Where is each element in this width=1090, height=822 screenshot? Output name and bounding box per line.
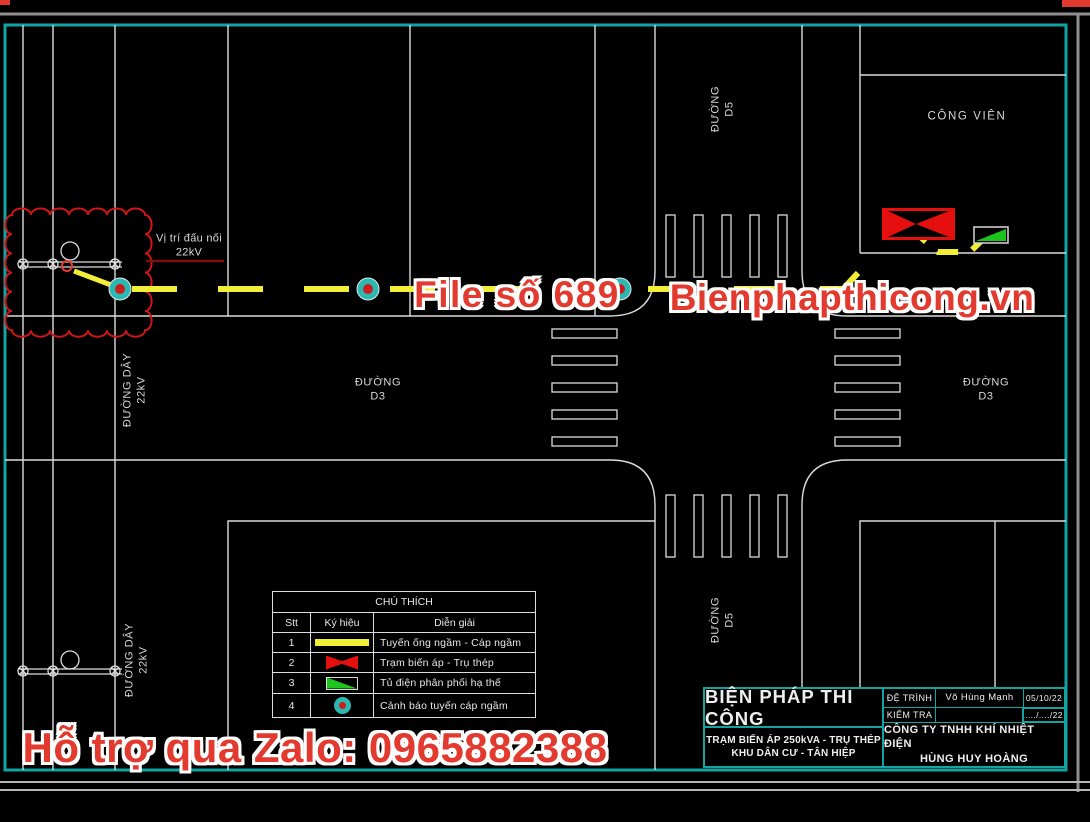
submit-date: 05/10/22	[1024, 689, 1064, 707]
park-label: CÔNG VIÊN	[928, 110, 1007, 125]
road-d3-label-west: ĐƯỜNG D3	[355, 376, 401, 405]
red-artifact-topright	[1062, 0, 1090, 7]
submit-row: ĐỆ TRÌNH Võ Hùng Mạnh 05/10/22	[884, 689, 1064, 708]
power-pole-bottom	[18, 651, 122, 676]
power-pole-top	[18, 242, 122, 271]
title-block: BIỆN PHÁP THI CÔNG TRẠM BIẾN ÁP 250kVA -…	[703, 687, 1066, 768]
cable-marker	[109, 278, 131, 300]
legend-col-desc: Diễn giải	[374, 613, 536, 633]
crosswalk-d3-west	[552, 329, 617, 446]
check-name-cell	[936, 708, 1024, 722]
check-label: KIỂM TRA	[884, 708, 936, 722]
crosswalk-d5-top	[666, 215, 787, 277]
watermark-website: Bienphapthicong.vn	[670, 277, 1035, 319]
cabinet-green-triangle	[327, 678, 357, 689]
road-d3-label-east: ĐƯỜNG D3	[963, 376, 1009, 405]
red-artifact-topleft	[0, 0, 10, 5]
legend-table: CHÚ THÍCH Stt Ký hiệu Diễn giải 1 Tuyến …	[272, 591, 536, 718]
legend-row: 2 Trạm biến áp - Trụ thép	[273, 653, 536, 673]
submit-name: Võ Hùng Mạnh	[936, 689, 1024, 707]
drawing-title: BIỆN PHÁP THI CÔNG	[705, 689, 882, 728]
underground-cable-icon	[315, 639, 369, 646]
road-d5-label-top: ĐƯỜNG D5	[709, 86, 738, 132]
bottom-frame-lines	[0, 782, 1090, 790]
submit-label: ĐỆ TRÌNH	[884, 689, 936, 707]
road-d5-label-bottom: ĐƯỜNG D5	[709, 597, 738, 643]
crosswalk-d5-bottom	[666, 495, 787, 557]
cad-drawing-sheet: Vị trí đấu nối 22kV CÔNG VIÊN ĐƯỜNG D5 Đ…	[0, 0, 1090, 822]
watermark-zalo: Hỗ trợ qua Zalo: 0965882388	[23, 724, 608, 772]
drawing-subtitle: TRẠM BIẾN ÁP 250kVA - TRỤ THÉP KHU DÂN C…	[705, 728, 882, 766]
legend-row: 4 Cảnh báo tuyến cáp ngầm	[273, 694, 536, 718]
legend-title: CHÚ THÍCH	[273, 592, 536, 613]
check-date: ..../..../22	[1024, 708, 1064, 722]
crosswalk-d3-east	[835, 329, 900, 446]
distribution-cabinet-icon	[326, 677, 358, 690]
watermark-file-number: File số 689	[414, 274, 620, 316]
legend-row: 1 Tuyến ống ngầm - Cáp ngầm	[273, 633, 536, 653]
transformer-icon	[326, 656, 358, 670]
cable-warning-icon	[334, 697, 351, 714]
check-row: KIỂM TRA ..../..../22	[884, 708, 1064, 723]
legend-col-symbol: Ký hiệu	[311, 613, 374, 633]
cable-marker	[357, 278, 379, 300]
distribution-cabinet-symbol	[974, 227, 1008, 243]
company-name: CÔNG TY TNHH KHÍ NHIỆT ĐIỆN HÙNG HUY HOÀ…	[884, 723, 1064, 766]
legend-col-no: Stt	[273, 613, 311, 633]
legend-row: 3 Tủ điện phân phối hạ thế	[273, 673, 536, 694]
connection-point-label: Vị trí đấu nối 22kV	[156, 232, 222, 261]
check-date-box: ..../..../22	[1022, 708, 1066, 722]
power-line-label-top: ĐƯỜNG DÂY 22kV	[121, 353, 150, 427]
transformer-symbol	[882, 208, 955, 240]
outer-frame	[0, 14, 1090, 792]
power-line-label-bottom: ĐƯỜNG DÂY 22kV	[123, 623, 152, 697]
